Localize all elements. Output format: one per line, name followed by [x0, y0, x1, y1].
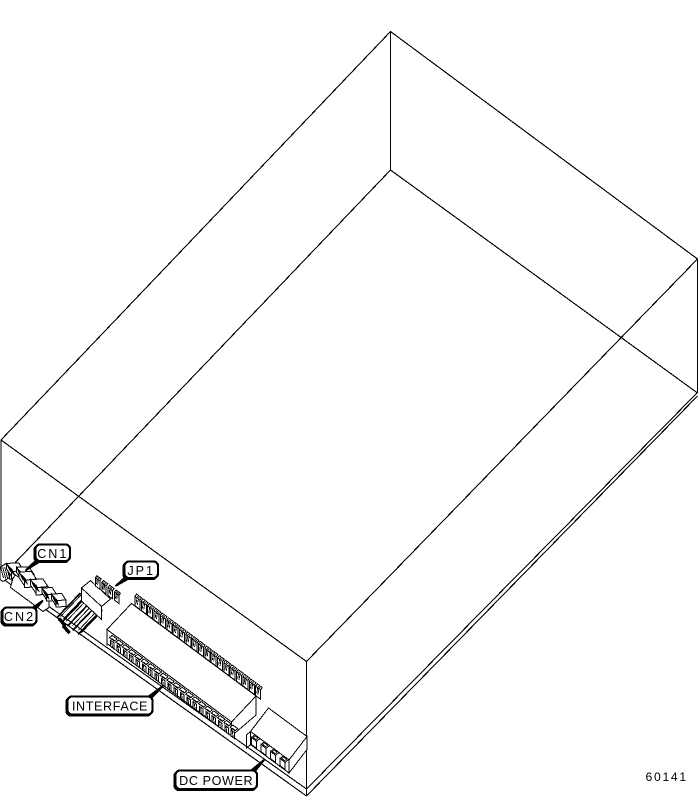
svg-text:60141: 60141: [646, 770, 688, 784]
svg-text:DC POWER: DC POWER: [179, 774, 253, 788]
svg-text:INTERFACE: INTERFACE: [72, 700, 148, 714]
svg-text:CN2: CN2: [4, 610, 35, 624]
svg-text:CN1: CN1: [37, 547, 68, 561]
svg-text:JP1: JP1: [127, 564, 155, 578]
